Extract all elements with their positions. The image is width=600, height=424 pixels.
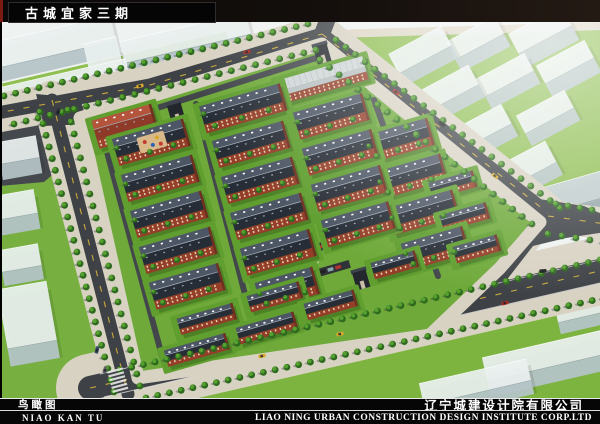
caption-band-cn: 鸟瞰图 辽宁城建设计院有限公司 xyxy=(0,398,600,410)
left-border xyxy=(0,22,2,398)
project-title-box: 古城宜家三期 xyxy=(8,2,216,23)
aerial-rendering xyxy=(0,0,600,424)
top-title-band: 古城宜家三期 xyxy=(0,0,600,22)
company-name-en: LIAO NING URBAN CONSTRUCTION DESIGN INST… xyxy=(255,413,592,423)
caption-band-en: NIAO KAN TU LIAO NING URBAN CONSTRUCTION… xyxy=(0,410,600,424)
red-edge-accent xyxy=(0,0,3,22)
project-title: 古城宜家三期 xyxy=(9,3,133,22)
presentation-board: 古城宜家三期 鸟瞰图 辽宁城建设计院有限公司 NIAO KAN TU LIAO … xyxy=(0,0,600,424)
view-label-pinyin: NIAO KAN TU xyxy=(22,413,104,423)
